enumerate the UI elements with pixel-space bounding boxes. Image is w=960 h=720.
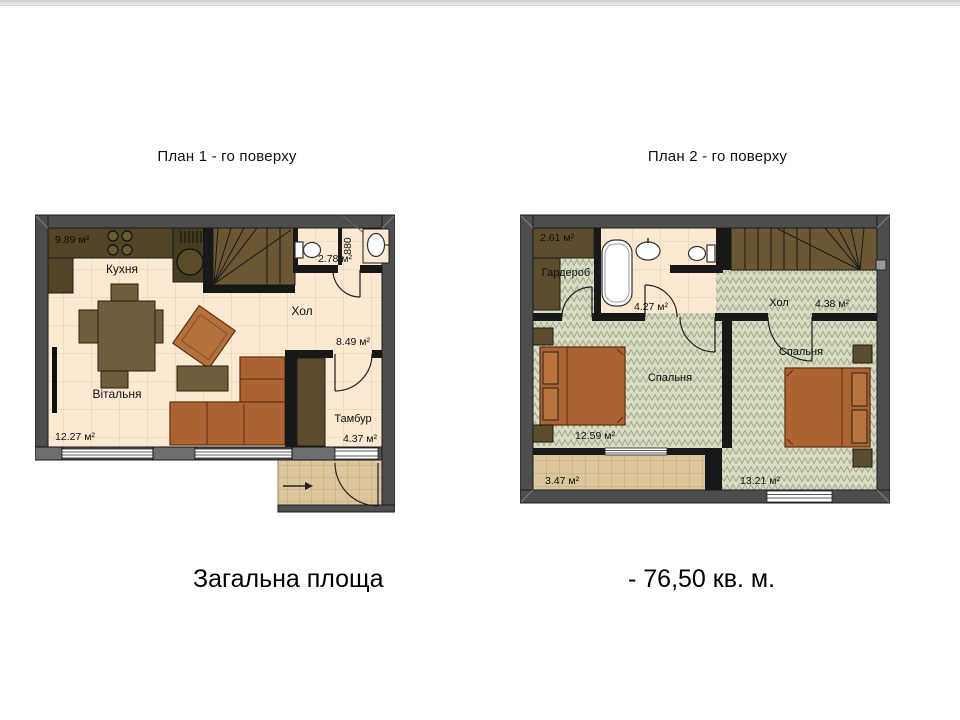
- sink: [636, 242, 660, 260]
- floor-plan-1: 9.89 м² Кухня 2.78 м² 880 Хол 8.49 м² Ві…: [35, 213, 395, 513]
- plan1-title: План 1 - го поверху: [47, 148, 407, 165]
- kitchen-name-label: Кухня: [106, 262, 138, 276]
- tambur-name-label: Тамбур: [334, 413, 371, 425]
- radiator: [52, 347, 57, 413]
- bathtub: [602, 240, 632, 306]
- niche-width-label: 880: [342, 237, 354, 255]
- bedroom2-window: [767, 491, 832, 502]
- bedroom1-name-label: Спальня: [648, 372, 692, 384]
- balcony-area-label: 3.47 м²: [545, 475, 580, 487]
- bedroom2-area-label: 13.21 м²: [740, 475, 780, 487]
- kitchen-area-label: 9.89 м²: [55, 234, 90, 246]
- staircase: [731, 228, 877, 270]
- tambur-closet: [297, 358, 325, 446]
- entrance-porch: [278, 460, 382, 505]
- chair: [111, 284, 138, 303]
- dining-table: [98, 301, 155, 371]
- windows: [35, 447, 378, 460]
- toilet-tank: [295, 242, 303, 258]
- wardrobe-area-label: 2.61 м²: [540, 232, 575, 244]
- bath-area-label: 4.27 м²: [634, 301, 669, 313]
- bedroom2-name-label: Спальня: [779, 346, 823, 358]
- bedroom1-area-label: 12.59 м²: [575, 430, 615, 442]
- staircase: [213, 228, 295, 285]
- hall-area-label: 8.49 м²: [336, 336, 371, 348]
- plan2-title: План 2 - го поверху: [535, 148, 900, 165]
- total-area-label: Загальна площа: [193, 565, 384, 594]
- entrance-opening: [335, 448, 378, 459]
- chair: [101, 369, 128, 388]
- living-area-label: 12.27 м²: [55, 431, 95, 443]
- total-area-value: - 76,50 кв. м.: [628, 565, 775, 594]
- coffee-table: [177, 366, 228, 391]
- bed-1: [540, 347, 625, 425]
- hall-name-label: Хол: [769, 297, 789, 309]
- living-name-label: Вітальня: [92, 387, 141, 401]
- tambur-area-label: 4.37 м²: [343, 433, 378, 445]
- window-top-edge: [0, 0, 960, 6]
- balcony-window: [605, 448, 667, 455]
- hall-name-label: Хол: [291, 304, 312, 318]
- toilet-bowl: [689, 247, 706, 261]
- washbasin: [368, 234, 385, 257]
- wardrobe-name-label: Гардероб: [542, 267, 590, 279]
- floor-plan-2: 2.61 м² Гардероб 4.27 м² Хол 4.38 м² Спа…: [520, 213, 890, 505]
- hall-area-label: 4.38 м²: [815, 298, 850, 310]
- bed-2: [785, 368, 870, 447]
- chair: [79, 310, 98, 343]
- wall-vent: [876, 260, 886, 270]
- toilet-tank: [707, 245, 715, 262]
